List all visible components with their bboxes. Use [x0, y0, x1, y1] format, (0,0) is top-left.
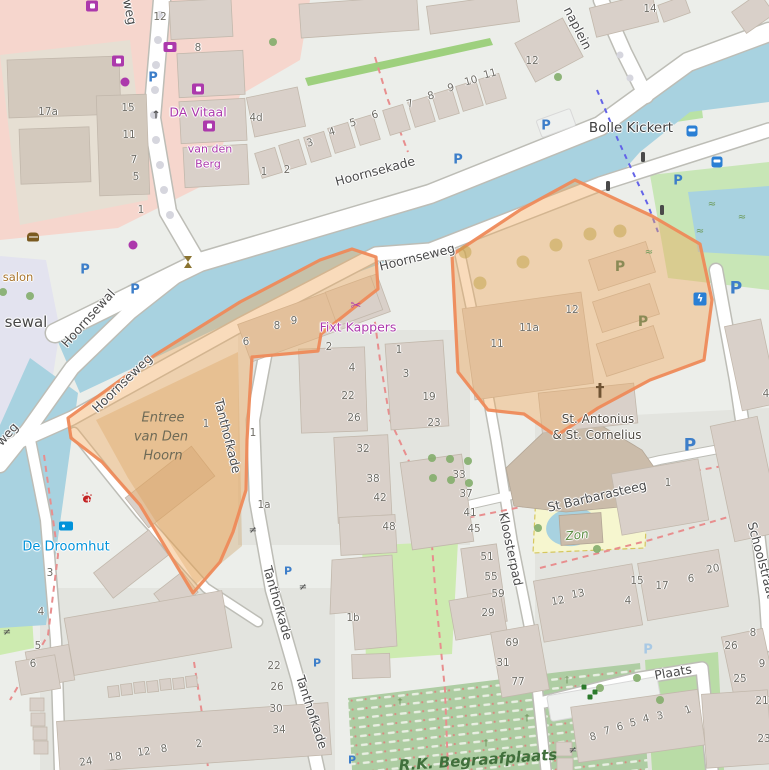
house-number: 4d	[249, 112, 262, 124]
ev-charging-icon: ϟ	[694, 293, 707, 306]
tree-icon	[428, 454, 436, 462]
tree-icon	[550, 239, 563, 252]
house-number: 1a	[257, 499, 270, 511]
house-number: 22	[341, 390, 354, 402]
tree-icon	[464, 457, 472, 465]
house-number: 1	[138, 204, 145, 216]
tree-icon	[269, 38, 277, 46]
tv-shop-icon	[164, 42, 177, 52]
house-number: 5	[348, 116, 358, 129]
shop-icon	[129, 241, 138, 250]
street-name: Hoornseweg	[378, 240, 457, 273]
grave-cross-icon: †	[525, 714, 530, 724]
house-number: 2	[195, 738, 203, 751]
house-number: 8	[750, 627, 757, 639]
house-number: 8	[195, 42, 202, 54]
street-name: Tanthofkade	[293, 673, 331, 750]
house-number: 12	[153, 11, 166, 23]
tree-icon	[656, 696, 664, 704]
house-number: 6	[243, 336, 250, 348]
traffic-light-icon	[660, 205, 664, 215]
house-number: 18	[108, 750, 123, 764]
house-number: 45	[467, 523, 480, 535]
house-number: 5	[628, 716, 637, 729]
house-number: 2	[326, 341, 333, 353]
shop-name: DA Vitaal	[169, 105, 226, 120]
house-number: 41	[463, 507, 476, 519]
house-number: 22	[267, 660, 280, 672]
traffic-light-icon	[606, 181, 610, 191]
house-number: 3	[403, 368, 410, 380]
house-number: 6	[370, 108, 380, 121]
house-number: 1	[665, 477, 672, 489]
playground-icon	[582, 685, 587, 690]
street-name: Hoornsekade	[333, 153, 416, 189]
shop-name: Fixt Kappers	[320, 320, 397, 335]
tree-icon	[554, 73, 562, 81]
area-name: Hoorn	[143, 449, 182, 464]
house-number: 8	[588, 730, 597, 743]
street-name: naplein	[561, 4, 595, 52]
marsh-icon: ≈	[708, 200, 716, 210]
house-number: 6	[688, 573, 695, 585]
house-number: 20	[705, 562, 720, 576]
house-number: 3	[305, 136, 315, 149]
gate-icon: ≠	[299, 583, 307, 593]
house-number: 55	[484, 571, 497, 583]
house-number: 7	[131, 154, 138, 166]
house-number: 9	[446, 81, 456, 94]
house-number: 26	[724, 640, 737, 652]
house-number: 12	[137, 745, 152, 759]
parking-area-icon: P	[615, 260, 625, 274]
parking-area-icon: P	[643, 644, 653, 657]
house-number: 8	[160, 743, 168, 756]
grave-cross-icon: †	[398, 698, 403, 708]
tree-icon	[447, 476, 455, 484]
house-number: 9	[291, 315, 298, 327]
gate-icon: ≠	[3, 628, 11, 638]
tree-icon	[429, 474, 437, 482]
veterinary-icon	[80, 491, 94, 504]
tree-icon	[593, 545, 601, 553]
house-number: 51	[480, 551, 493, 563]
house-number: 11	[122, 129, 135, 141]
street-name: Tanthofkade	[211, 397, 244, 475]
oneway-arrow-icon: ↑	[151, 110, 160, 121]
tree-icon	[517, 256, 530, 269]
house-number: 8	[426, 89, 436, 102]
parking-area-icon: P	[638, 315, 648, 329]
shop-icon	[121, 78, 130, 87]
tree-icon	[584, 228, 597, 241]
house-number: 24	[79, 755, 94, 769]
house-number: 21	[755, 695, 768, 707]
house-number: 23	[427, 417, 440, 429]
house-number: 12	[550, 594, 565, 608]
traffic-light-icon	[641, 152, 645, 162]
house-number: 2	[284, 164, 291, 176]
parking-icon: P	[684, 438, 696, 455]
house-number: 9	[759, 658, 766, 670]
house-number: 4	[763, 388, 769, 400]
house-number: 26	[270, 681, 283, 693]
tree-icon	[633, 674, 641, 682]
tree-icon	[459, 246, 472, 259]
house-number: 13	[570, 587, 585, 601]
house-number: 29	[481, 607, 494, 619]
house-number: 30	[269, 703, 282, 715]
house-number: 1	[250, 427, 257, 439]
gate-icon: ≠	[249, 526, 257, 536]
house-number: 1	[261, 166, 268, 178]
gate-icon: ≠	[569, 746, 577, 756]
house-number: 19	[422, 391, 435, 403]
house-number: 15	[121, 102, 134, 114]
house-number: 26	[347, 412, 360, 424]
house-number: 12	[565, 304, 578, 316]
house-number: 6	[615, 720, 624, 733]
house-number: 8	[274, 320, 281, 332]
street-name: St Barbarasteeg	[546, 477, 648, 514]
tree-icon	[446, 455, 454, 463]
parking-icon: P	[130, 284, 140, 297]
parking-icon: P	[313, 658, 321, 669]
house-number: 6	[30, 658, 37, 670]
house-number: 12	[525, 55, 538, 67]
house-number: 4	[38, 606, 45, 618]
shop-name: van den	[188, 143, 232, 156]
guesthouse-name: De Droomhut	[22, 540, 109, 555]
playground-icon	[593, 690, 598, 695]
map-canvas[interactable]: HoornsekadeHoornsewegHoornsewegHoornsewa…	[0, 0, 769, 770]
tree-icon	[614, 225, 627, 238]
parking-icon: P	[348, 755, 356, 766]
house-number: 3	[655, 709, 664, 722]
tree-icon	[474, 277, 487, 290]
church-cross-icon: †	[596, 382, 605, 400]
house-number: 77	[511, 676, 524, 688]
street-name: weg	[0, 419, 21, 448]
house-number: 32	[356, 443, 369, 455]
house-number: 59	[491, 588, 504, 600]
pharmacy-icon	[192, 84, 204, 95]
parking-icon: P	[673, 175, 683, 188]
house-number: 3	[47, 567, 54, 579]
shop-name: salon	[3, 270, 34, 284]
street-name: Plaats	[653, 661, 693, 682]
house-number: 25	[733, 673, 746, 685]
marsh-icon: ≈	[738, 213, 746, 223]
house-number: 1b	[346, 612, 359, 624]
garden-name: Zon	[565, 527, 590, 543]
tree-icon	[0, 288, 7, 296]
tree-icon	[465, 479, 473, 487]
house-number: 4	[327, 125, 337, 138]
parking-icon: P	[80, 264, 90, 277]
house-number: 4	[349, 362, 356, 374]
marsh-icon: ≈	[696, 227, 704, 237]
house-number: 31	[496, 657, 509, 669]
cemetery-name: R.K. Begraafplaats	[398, 745, 558, 770]
playground-icon	[588, 695, 593, 700]
house-number: 17	[655, 580, 668, 592]
guesthouse-icon	[59, 522, 73, 531]
street-name: Kloosterpad	[496, 511, 526, 587]
parking-icon: P	[730, 281, 742, 298]
church-name: St. Antonius	[562, 412, 635, 426]
bakery-icon	[112, 56, 124, 67]
house-number: 11	[490, 338, 503, 350]
house-number: 10	[463, 73, 479, 88]
street-name: Schoolstraat	[745, 520, 769, 599]
labels-layer: HoornsekadeHoornsewegHoornsewegHoornsewa…	[0, 0, 769, 770]
house-number: 5	[35, 640, 42, 652]
house-number: 14	[643, 3, 656, 15]
bus-stop-icon	[712, 157, 723, 168]
parking-icon: P	[284, 566, 292, 577]
house-number: 7	[602, 724, 611, 737]
house-number: 34	[272, 724, 285, 736]
bakery-icon	[203, 121, 215, 132]
house-number: 1	[683, 703, 693, 717]
parking-icon: P	[148, 72, 158, 85]
house-number: 11	[482, 66, 498, 81]
house-number: 7	[405, 97, 415, 110]
street-name: Hoornsewal	[58, 286, 118, 350]
tree-icon	[26, 292, 34, 300]
house-number: 69	[505, 637, 518, 649]
marsh-icon: ≈	[645, 248, 653, 258]
shop-name: Berg	[195, 158, 221, 171]
church-name: & St. Cornelius	[552, 428, 641, 442]
street-name: weg	[120, 0, 140, 26]
place-name: sewal	[5, 313, 48, 331]
house-number: 4	[641, 712, 650, 725]
house-number: 38	[366, 473, 379, 485]
parking-icon: P	[541, 120, 551, 133]
street-name: Hoornseweg	[89, 351, 155, 416]
house-number: 1	[203, 418, 210, 430]
house-number: 17a	[38, 106, 58, 118]
fast-food-icon	[27, 233, 39, 242]
parking-icon: P	[453, 154, 463, 167]
bridge-name: Bolle Kickert	[589, 120, 673, 136]
monument-icon	[184, 256, 192, 268]
hairdresser-icon: ✂	[351, 300, 362, 313]
bus-stop-icon	[687, 126, 698, 137]
grave-cross-icon: †	[565, 676, 570, 686]
grave-cross-icon: †	[484, 739, 489, 749]
house-number: 23	[757, 733, 769, 745]
house-number: 42	[373, 492, 386, 504]
house-number: 15	[630, 575, 643, 587]
house-number: 5	[133, 171, 140, 183]
area-name: van Den	[134, 430, 188, 445]
area-name: Entree	[142, 411, 185, 426]
clothes-shop-icon	[86, 1, 98, 12]
house-number: 11a	[519, 322, 539, 334]
house-number: 48	[382, 521, 395, 533]
house-number: 4	[625, 595, 632, 607]
house-number: 1	[396, 344, 403, 356]
tree-icon	[534, 524, 542, 532]
house-number: 37	[459, 488, 472, 500]
